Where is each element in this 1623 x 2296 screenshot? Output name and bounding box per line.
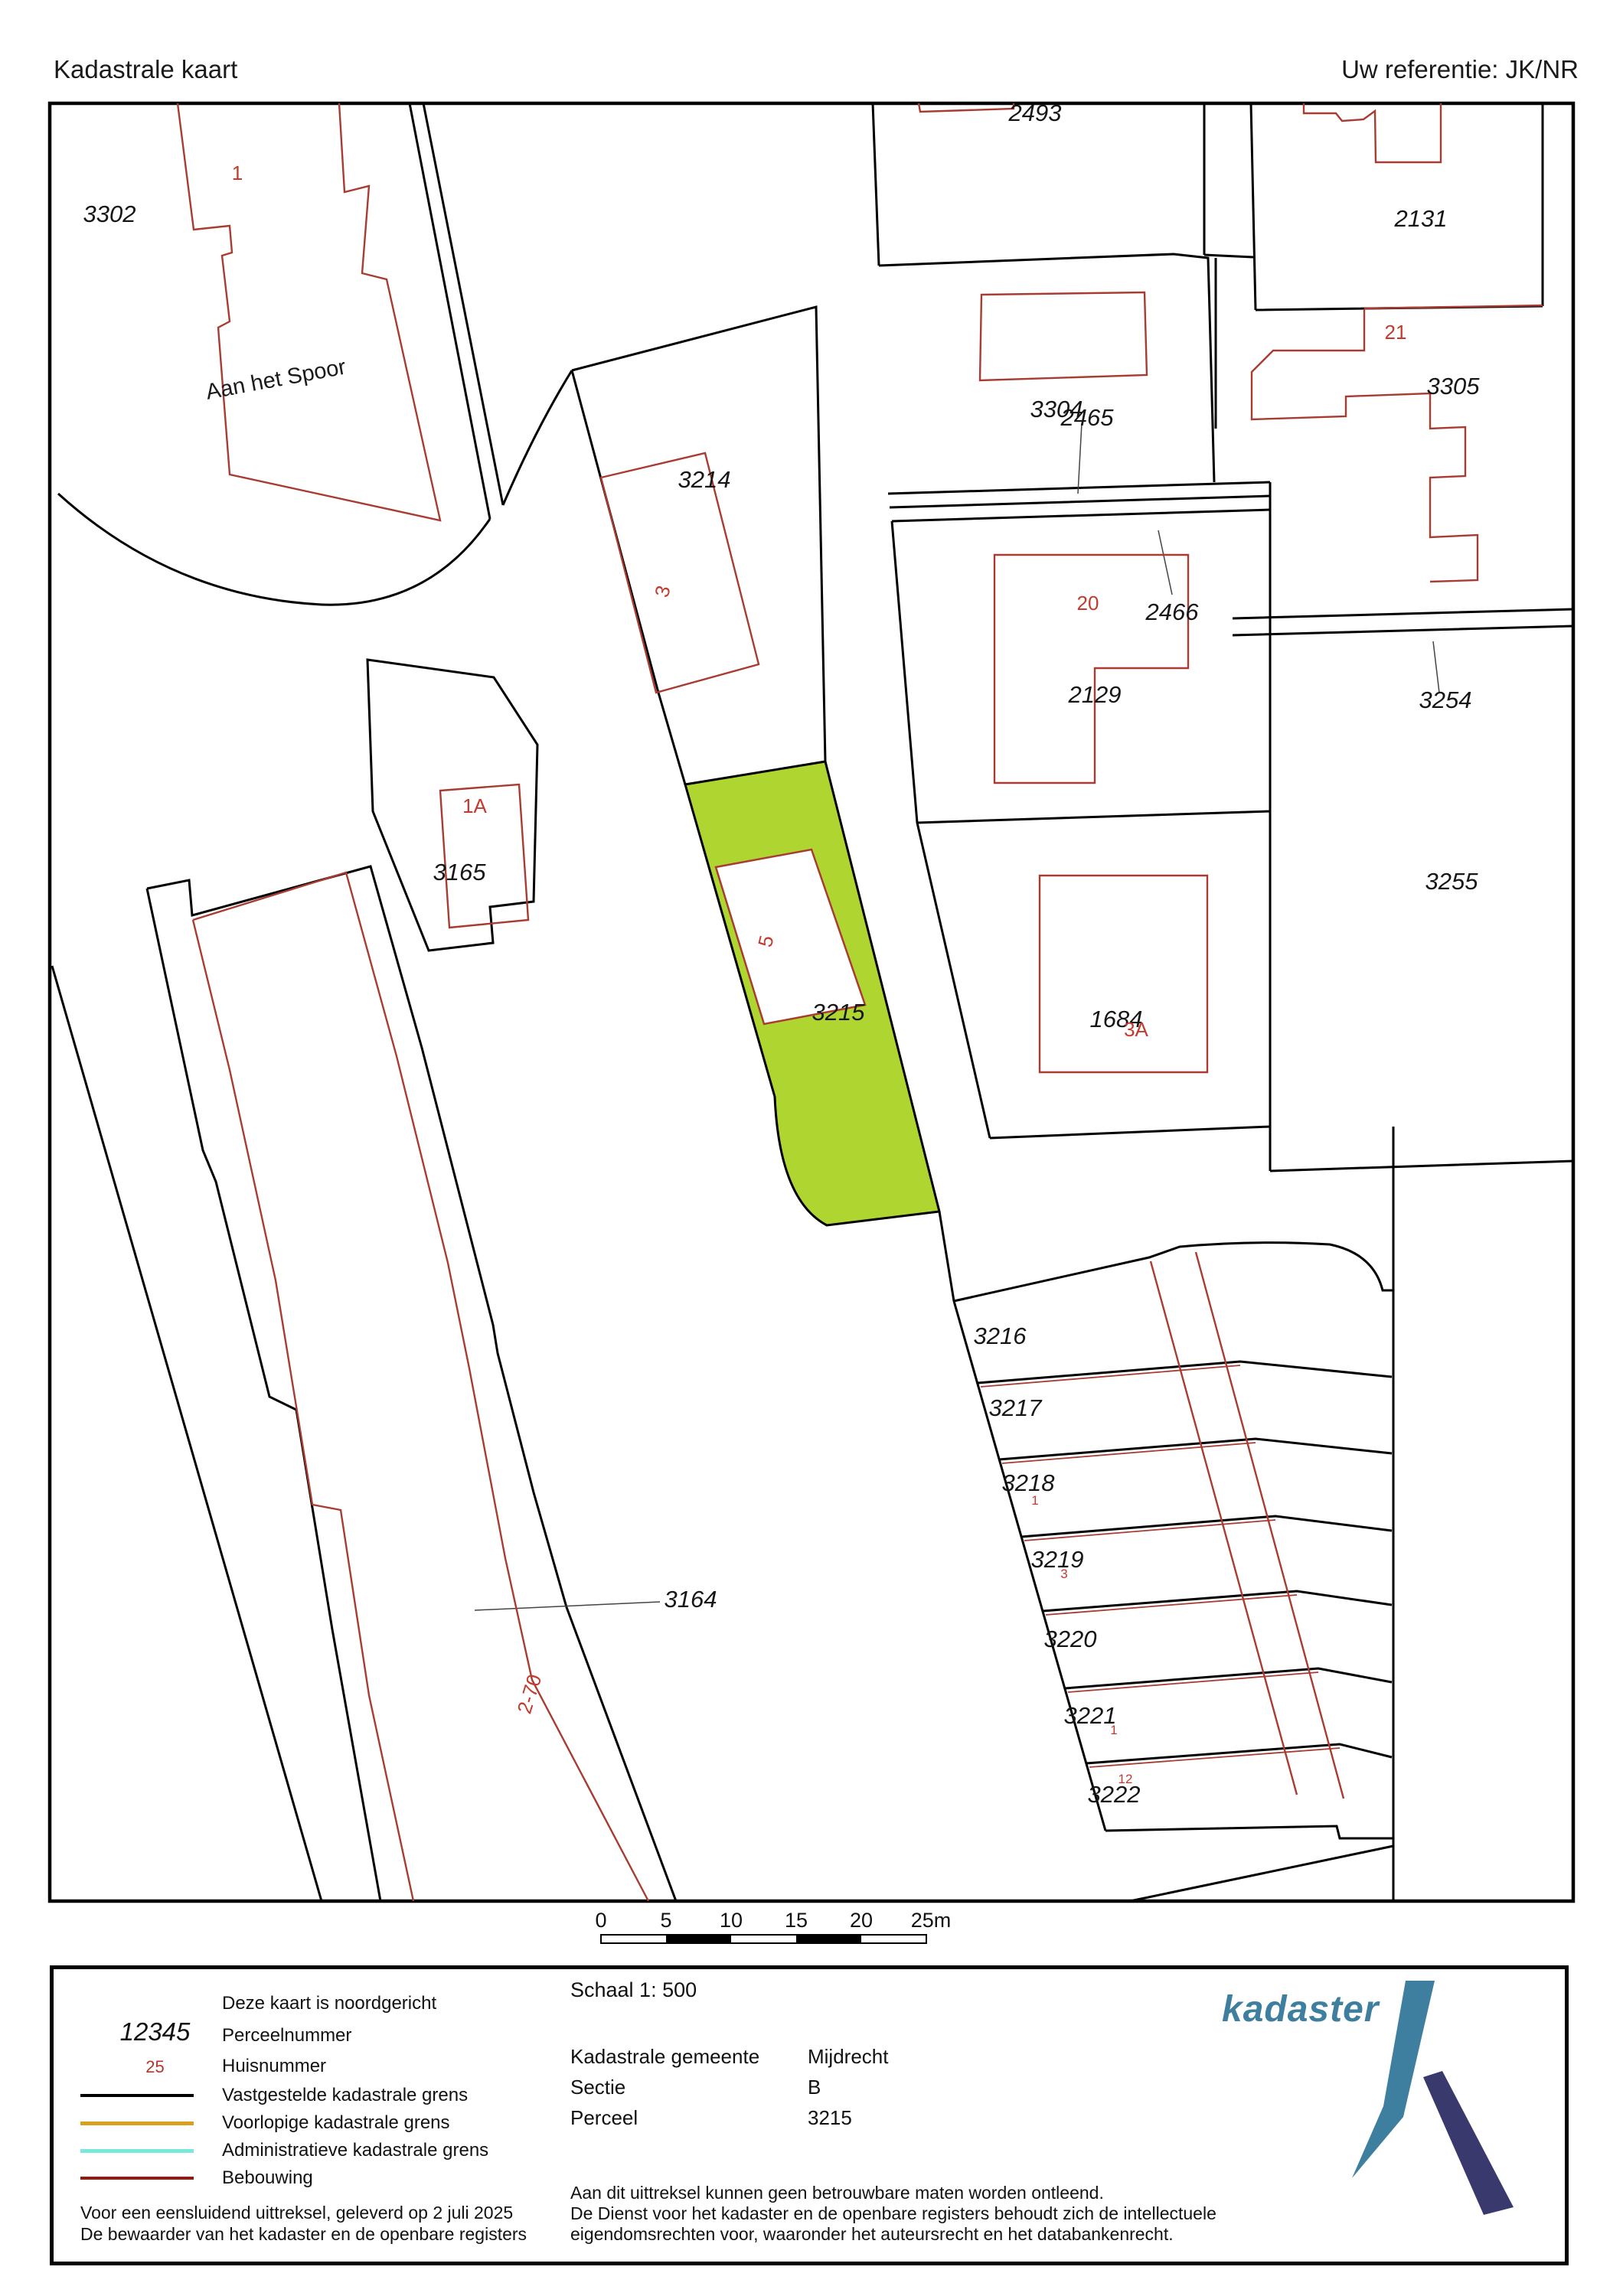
page: { "header": { "title": "Kadastrale kaart…: [0, 0, 1623, 2296]
parcel-label-3255: 3255: [1425, 868, 1479, 895]
housenumber-20: 20: [1077, 592, 1099, 615]
logo-navy-blade: [1423, 2071, 1514, 2215]
parcel-label-3220: 3220: [1044, 1626, 1097, 1652]
parcel-label-2465: 2465: [1060, 404, 1115, 431]
parcel-label-3214: 3214: [678, 466, 731, 493]
cadastral-map: 3302 2493 2131 3304 2465 3305 2466 2129 …: [0, 0, 1623, 1959]
housenumber-1a: 1A: [462, 794, 487, 817]
sectie-value: B: [808, 2076, 821, 2099]
housenumber-1: 1: [232, 161, 243, 184]
legend-symbol-huisnummer: 25: [115, 2057, 195, 2077]
legend-label-huisnummer: Huisnummer: [222, 2056, 326, 2077]
parcel-label-3215: 3215: [812, 999, 866, 1026]
parcel-label-2466: 2466: [1145, 598, 1200, 625]
scale-segment-dark: [666, 1935, 731, 1943]
sectie-label: Sectie: [570, 2076, 625, 2099]
parcel-label-2493: 2493: [1008, 99, 1062, 126]
logo-teal-blade: [1352, 1981, 1435, 2178]
scale-segment-dark2: [796, 1935, 861, 1943]
kadaster-logo-icon: [1344, 1973, 1527, 2226]
legend-label-bebouwing: Bebouwing: [222, 2167, 313, 2189]
north-note: Deze kaart is noordgericht: [222, 1993, 436, 2014]
housenumber-strip-1: 1: [1031, 1493, 1038, 1508]
housenumber-strip-12: 12: [1118, 1772, 1133, 1786]
disclaimer-line1: Aan dit uittreksel kunnen geen betrouwba…: [570, 2183, 1104, 2203]
scale-tick-0: 0: [595, 1909, 606, 1932]
scale-tick-10: 10: [720, 1909, 743, 1932]
parcel-label-3302: 3302: [83, 201, 136, 227]
legend-label-administratieve-grens: Administratieve kadastrale grens: [222, 2140, 488, 2161]
parcel-label-3164: 3164: [665, 1586, 717, 1613]
scale-ticks: 0 5 10 15 20 25m: [595, 1909, 951, 1932]
disclaimer-line2: De Dienst voor het kadaster en de openba…: [570, 2203, 1216, 2224]
housenumber-strip-1b: 1: [1110, 1723, 1117, 1737]
disclaimer-line3: eigendomsrechten voor, waaronder het aut…: [570, 2224, 1174, 2245]
legend-symbol-bebouwing: [80, 2177, 194, 2180]
gemeente-value: Mijdrecht: [808, 2045, 888, 2069]
scale-tick-15: 15: [785, 1909, 808, 1932]
scale-tick-25m: 25m: [911, 1909, 952, 1932]
perceel-value: 3215: [808, 2106, 852, 2130]
scale-bar-frame: [601, 1935, 926, 1943]
scale-tick-20: 20: [850, 1909, 873, 1932]
legend-symbol-perceelnummer: 12345: [115, 2017, 195, 2047]
issue-statement-line2: De bewaarder van het kadaster en de open…: [80, 2224, 527, 2245]
parcel-label-3165: 3165: [433, 859, 487, 885]
legend-label-perceelnummer: Perceelnummer: [222, 2025, 351, 2047]
parcel-label-2131: 2131: [1394, 205, 1448, 232]
legend-symbol-voorlopige-grens: [80, 2122, 194, 2125]
parcel-label-3218: 3218: [1002, 1469, 1056, 1496]
housenumber-21: 21: [1385, 321, 1407, 344]
parcel-label-3219: 3219: [1031, 1546, 1084, 1573]
housenumber-3a: 3A: [1124, 1018, 1148, 1041]
scale-label: Schaal 1: 500: [570, 1978, 697, 2002]
scale-bar: 0 5 10 15 20 25m: [595, 1909, 951, 1943]
legend-label-voorlopige-grens: Voorlopige kadastrale grens: [222, 2112, 450, 2134]
parcel-label-3221: 3221: [1064, 1702, 1117, 1729]
legend-symbol-administratieve-grens: [80, 2149, 194, 2153]
parcel-label-3305: 3305: [1427, 373, 1481, 400]
scale-tick-5: 5: [660, 1909, 671, 1932]
parcel-label-3254: 3254: [1419, 687, 1472, 713]
housenumber-strip-3: 3: [1060, 1567, 1067, 1581]
legend-symbol-vastgestelde-grens: [80, 2094, 194, 2097]
parcel-label-2129: 2129: [1068, 681, 1122, 708]
parcel-label-3217: 3217: [989, 1394, 1043, 1421]
parcel-label-3216: 3216: [974, 1322, 1027, 1349]
gemeente-label: Kadastrale gemeente: [570, 2045, 759, 2069]
issue-statement-line1: Voor een eensluidend uittreksel, gelever…: [80, 2203, 513, 2223]
perceel-label: Perceel: [570, 2106, 638, 2130]
legend-label-vastgestelde-grens: Vastgestelde kadastrale grens: [222, 2085, 468, 2106]
